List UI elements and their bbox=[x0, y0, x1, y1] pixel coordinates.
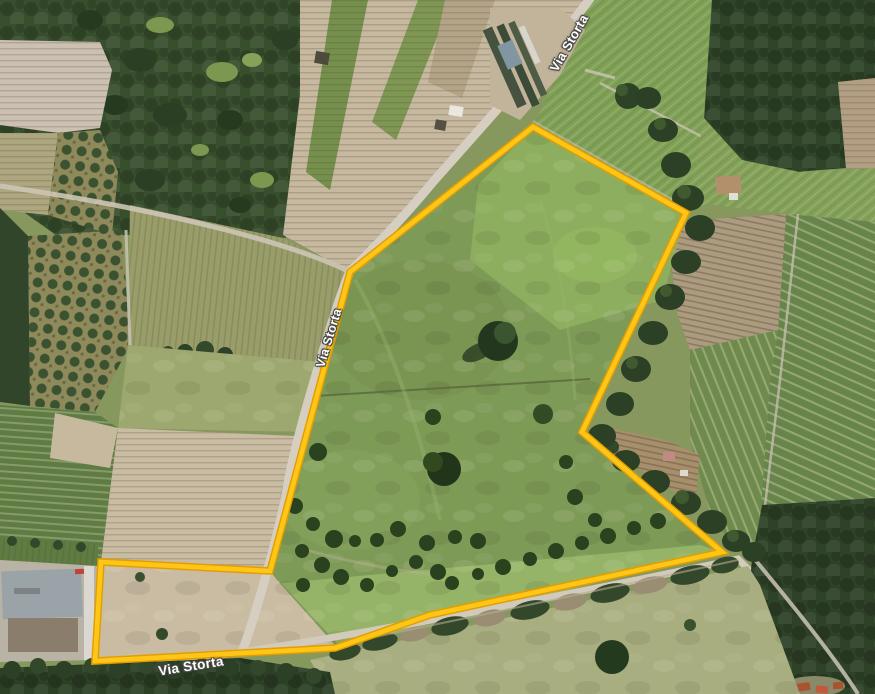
shed-white bbox=[680, 470, 688, 476]
map-viewport[interactable]: Via Storta Via Storta Via Storta bbox=[0, 0, 875, 694]
farmyard-bottomleft bbox=[0, 560, 98, 662]
house-pink-roof bbox=[663, 452, 675, 461]
field-brown-plowed bbox=[668, 214, 786, 350]
satellite-imagery bbox=[0, 0, 875, 694]
red-vehicle bbox=[75, 569, 84, 574]
red-roof-debris bbox=[833, 682, 844, 690]
forest-topright bbox=[704, 0, 875, 172]
red-roof-debris bbox=[816, 685, 829, 693]
barn-roof bbox=[8, 618, 78, 652]
warehouse-roof bbox=[1, 569, 83, 620]
